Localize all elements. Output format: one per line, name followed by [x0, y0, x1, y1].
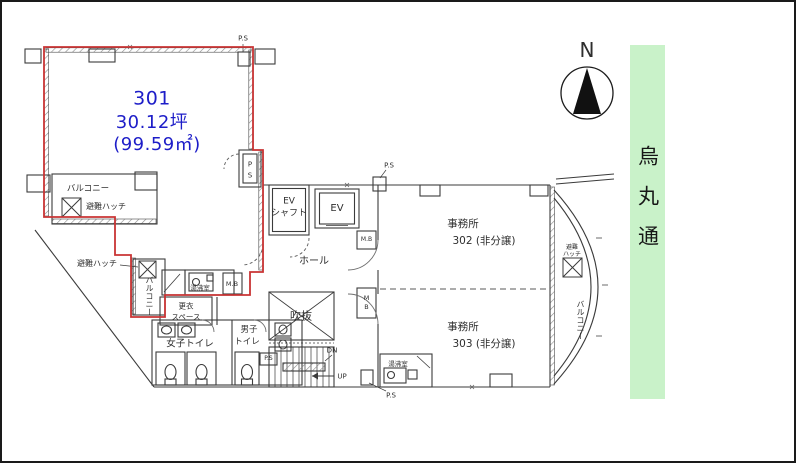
up-arrow-icon: [312, 373, 318, 380]
office-302-name: 事務所: [447, 219, 479, 230]
unit-301-area-m2: (99.59㎡): [113, 136, 201, 154]
balcony-label-left-vertical: バルコニー: [145, 276, 153, 316]
ev-shaft-label-line2: シャフト: [271, 210, 307, 219]
ev-shaft-label-line1: EV: [283, 198, 295, 207]
meter-box-label-top: M.B: [361, 237, 372, 243]
hall-label: ホール: [299, 257, 329, 267]
atrium-label: 吹抜: [290, 311, 312, 322]
office-303-number: 303 (非分譲): [452, 339, 515, 350]
men-toilet-label-line1: 男子: [240, 326, 257, 335]
meter-box-label-bottom-m: M: [364, 295, 370, 302]
street-strip: 烏丸通: [630, 45, 665, 399]
floor-plan-drawing: [2, 2, 796, 463]
men-toilet-label-line2: トイレ: [234, 338, 260, 347]
hot-water-room-label-301: 湯沸室: [190, 285, 210, 292]
meter-box-label-bottom-b: B: [364, 304, 368, 311]
ps-label-301-top: P.S: [238, 36, 248, 43]
floor-plan-image: 301 30.12坪 (99.59㎡) バルコニー 避難ハッチ 避難ハッチ バル…: [0, 0, 796, 463]
compass-north-label: N: [580, 40, 595, 60]
hot-water-room-label-303: 湯沸室: [388, 361, 408, 368]
changing-space-label-line1: 更衣: [179, 302, 194, 310]
escape-hatch-icon: [563, 258, 582, 277]
balcony-label-right-vertical: バルコニー: [576, 300, 584, 340]
escape-hatch-label-right-line2: ハッチ: [563, 252, 581, 258]
women-toilet-label: 女子トイレ: [166, 339, 214, 349]
meter-box-label-301: M.B: [226, 281, 238, 288]
escape-hatch-label-upper: 避難ハッチ: [86, 203, 126, 211]
ev-label: EV: [330, 204, 343, 214]
balcony-label-upper: バルコニー: [67, 185, 109, 194]
office-302-number: 302 (非分譲): [452, 236, 515, 247]
ps-shaft-letter-s: S: [248, 173, 252, 180]
unit-301-number: 301: [133, 90, 171, 109]
ps-label-men-toilet: P.S: [264, 356, 272, 362]
escape-hatch-label-left: 避難ハッチ: [77, 260, 117, 268]
changing-space-label-line2: スペース: [171, 313, 200, 321]
stairs-dn-label: DN: [327, 348, 338, 355]
ps-shaft-letter-p: P: [248, 162, 252, 169]
street-name: 烏丸通: [633, 145, 663, 265]
office-303-name: 事務所: [447, 322, 479, 333]
compass-icon: [561, 67, 613, 119]
stairs-up-label: UP: [337, 374, 346, 381]
ps-label-bottom: P.S: [386, 393, 396, 400]
ps-label-302-top: P.S: [384, 163, 394, 170]
escape-hatch-icon: [62, 198, 81, 217]
unit-301-area-tsubo: 30.12坪: [116, 114, 189, 132]
